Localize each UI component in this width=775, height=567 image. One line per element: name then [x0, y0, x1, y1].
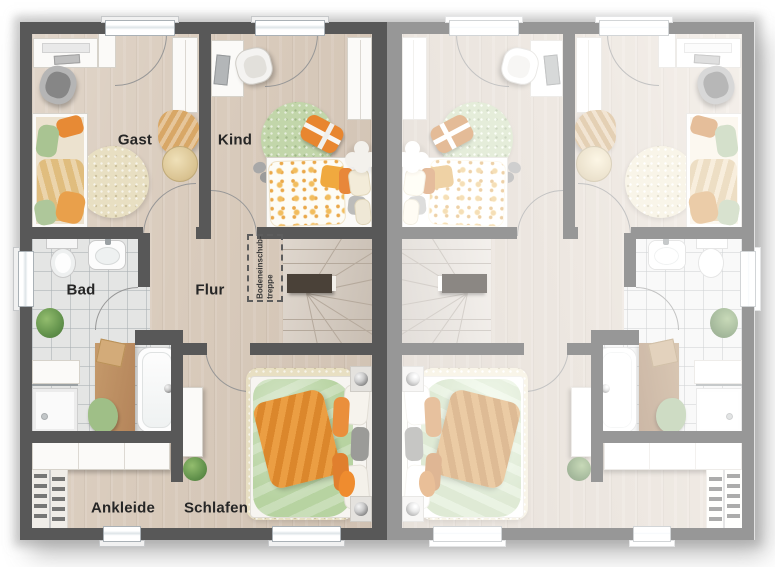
wall-schlafen-pier	[183, 343, 207, 355]
wardrobe-seam	[78, 443, 79, 469]
mirrored-gast-side-cabinet	[658, 33, 676, 68]
staircase	[283, 233, 372, 343]
wall-below-stairs	[250, 343, 372, 355]
stair-tread	[283, 249, 372, 250]
ankleide-wardrobe	[32, 440, 170, 470]
gast-wardrobe	[172, 37, 198, 113]
mirrored-wardrobe-seam	[695, 443, 696, 469]
mirrored-kind-bed	[402, 157, 508, 228]
mirrored-stair-tread	[402, 330, 491, 331]
mirrored-gast-window	[599, 20, 669, 36]
stair-tread	[283, 330, 372, 331]
bath-counter	[32, 360, 80, 384]
mirrored-towel-green	[656, 398, 686, 433]
mirrored-staircase	[402, 233, 491, 343]
pillow-cream	[347, 168, 372, 198]
outer-wall-top	[20, 22, 387, 34]
chair-seat	[43, 69, 74, 101]
floorplan-left: Gast Kind Bad Flur Ankleide Schlafen Bod…	[20, 22, 387, 540]
ankleide-window	[103, 526, 141, 542]
chair-seat	[242, 53, 269, 80]
wardrobe-seam	[185, 40, 186, 112]
mirrored-shower-drain	[726, 413, 733, 420]
mirrored-chair-seat	[701, 69, 732, 101]
shoe-rack	[32, 470, 68, 528]
desk-shelf	[42, 43, 90, 53]
mirrored-toilet-bowl	[698, 248, 724, 278]
stairwell-void	[287, 274, 332, 293]
pillow-gray	[350, 427, 369, 462]
party-wall	[372, 22, 387, 540]
ankleide-label: Ankleide	[91, 500, 155, 517]
mirrored-kind-window	[449, 20, 519, 36]
mirrored-chair-seat	[505, 53, 532, 80]
mirrored-schlafen-cabinet	[571, 387, 592, 457]
mirrored-gast-desk	[676, 38, 741, 68]
mirrored-gast-single-bed	[686, 113, 742, 228]
mirrored-wall-below-gast	[631, 227, 742, 239]
wall-bathtub-right	[171, 345, 183, 482]
mirrored-stair-handrail	[438, 276, 442, 291]
mirrored-wall-below-stairs	[402, 343, 524, 355]
desk-monitor	[213, 54, 230, 85]
gast-side-cabinet	[98, 33, 116, 68]
mirrored-wall-pier-doors	[563, 227, 578, 239]
mirrored-stairwell-void	[442, 274, 487, 293]
kind-window	[255, 20, 325, 36]
shoe-row-column	[52, 477, 65, 525]
mirrored-pillow-cream-2	[402, 198, 421, 226]
stair-tread	[306, 293, 324, 343]
wall-gast-kind	[199, 34, 211, 227]
pillow-orange	[332, 397, 350, 438]
mirrored-pillow-green	[714, 124, 739, 159]
unit-right-mirrored	[387, 22, 755, 540]
schlafen-plant	[183, 457, 207, 481]
mirrored-bathtub	[597, 347, 637, 433]
rack-pole	[49, 470, 51, 528]
mirrored-shoe-row-column	[709, 477, 722, 525]
mirrored-pillow-cream	[402, 168, 427, 198]
mirrored-stair-tread	[402, 319, 491, 320]
loft-hatch-text: Bodeneinschub- treppe	[255, 237, 274, 300]
mirrored-gast-wardrobe	[576, 37, 602, 113]
bathroom-plant	[36, 308, 64, 338]
washbasin	[88, 240, 126, 270]
wall-pier-doors	[196, 227, 211, 239]
desk-monitor	[54, 54, 81, 65]
stair-tread	[283, 319, 372, 320]
stair-tread	[283, 263, 372, 264]
mirrored-stair-tread	[402, 249, 491, 250]
mirrored-party-wall	[387, 22, 402, 540]
nightstand-lamp	[354, 372, 368, 386]
mirrored-nightstand-lamp	[406, 502, 420, 516]
towel-green	[88, 398, 118, 433]
mirrored-washbasin	[648, 240, 686, 270]
mirrored-basin-faucet	[663, 238, 669, 245]
mirrored-basin-bowl	[654, 247, 679, 265]
mirrored-wall-below-bad	[591, 431, 754, 443]
mirrored-flower-side-table	[405, 149, 420, 164]
unit-left: Gast Kind Bad Flur Ankleide Schlafen Bod…	[20, 22, 387, 540]
mirrored-shoe-row-column	[727, 474, 740, 524]
kind-wardrobe	[347, 37, 372, 120]
mirrored-bath-counter	[694, 360, 742, 384]
mirrored-pillow-gray	[404, 427, 423, 462]
schlafen-cabinet	[182, 387, 203, 457]
loft-hatch-annotation: Bodeneinschub- treppe	[247, 234, 283, 302]
basin-faucet	[105, 238, 111, 245]
mirrored-bad-window	[740, 251, 756, 307]
flur-label: Flur	[195, 282, 224, 299]
kind-bed	[266, 157, 372, 228]
wall-bad-flur	[138, 233, 150, 287]
shoe-row-column	[34, 474, 47, 524]
schlafen-window	[272, 526, 341, 542]
mirrored-desk-monitor	[543, 54, 560, 85]
gast-window	[105, 20, 175, 36]
mirrored-wall-gast-kind	[563, 34, 575, 227]
bad-window	[18, 251, 34, 307]
mirrored-shoe-rack	[706, 470, 742, 528]
floorplan-canvas: Gast Kind Bad Flur Ankleide Schlafen Bod…	[0, 0, 775, 567]
mirrored-kind-wardrobe	[402, 37, 427, 120]
wall-bad-stub	[135, 330, 183, 345]
mirrored-pillow-orange	[424, 397, 442, 438]
stair-handrail	[332, 276, 336, 291]
mirrored-wardrobe-seam	[649, 443, 650, 469]
mirrored-laundry-basket	[576, 146, 612, 182]
vanity-stool	[96, 339, 126, 368]
wardrobe-seam	[124, 443, 125, 469]
shower-glass-divider	[32, 384, 78, 386]
gast-single-bed	[32, 113, 88, 228]
mirrored-schlafen-window	[433, 526, 502, 542]
schlafen-label: Schlafen	[184, 500, 248, 517]
shower-drain	[41, 413, 48, 420]
mirrored-rack-pole	[723, 470, 725, 528]
wall-below-bad	[20, 431, 183, 443]
mirrored-bathroom-plant	[710, 308, 738, 338]
mirrored-wardrobe-seam	[413, 40, 414, 119]
mirrored-schlafen-plant	[567, 457, 591, 481]
mirrored-desk-shelf	[684, 43, 732, 53]
flower-side-table	[354, 149, 369, 164]
bad-label: Bad	[67, 282, 96, 299]
mirrored-ankleide-window	[633, 526, 671, 542]
mirrored-nightstand-lamp	[406, 372, 420, 386]
floorplan-right	[387, 22, 754, 540]
shower-tray	[32, 388, 78, 433]
mirrored-shower-tray	[696, 388, 742, 433]
wall-below-gast	[32, 227, 143, 239]
gast-desk	[33, 38, 98, 68]
mirrored-wall-schlafen-pier	[567, 343, 591, 355]
basin-bowl	[95, 247, 120, 265]
mirrored-wardrobe-seam	[588, 40, 589, 112]
pillow-cream-2	[354, 198, 373, 226]
mirrored-wall-bad-stub	[591, 330, 639, 345]
mirrored-wall-bad-flur	[624, 233, 636, 287]
mirrored-wall-below-kind	[402, 227, 517, 239]
toilet-bowl	[50, 248, 76, 278]
mirrored-wall-bathtub-right	[591, 345, 603, 482]
wardrobe-seam	[360, 40, 361, 119]
mirrored-outer-wall-top	[387, 22, 754, 34]
nightstand-lamp	[354, 502, 368, 516]
gast-label: Gast	[118, 132, 152, 149]
kind-label: Kind	[218, 132, 252, 149]
mirrored-ankleide-wardrobe	[604, 440, 742, 470]
mirrored-desk-monitor	[694, 54, 721, 65]
mirrored-shower-glass-divider	[696, 384, 742, 386]
laundry-basket	[162, 146, 198, 182]
